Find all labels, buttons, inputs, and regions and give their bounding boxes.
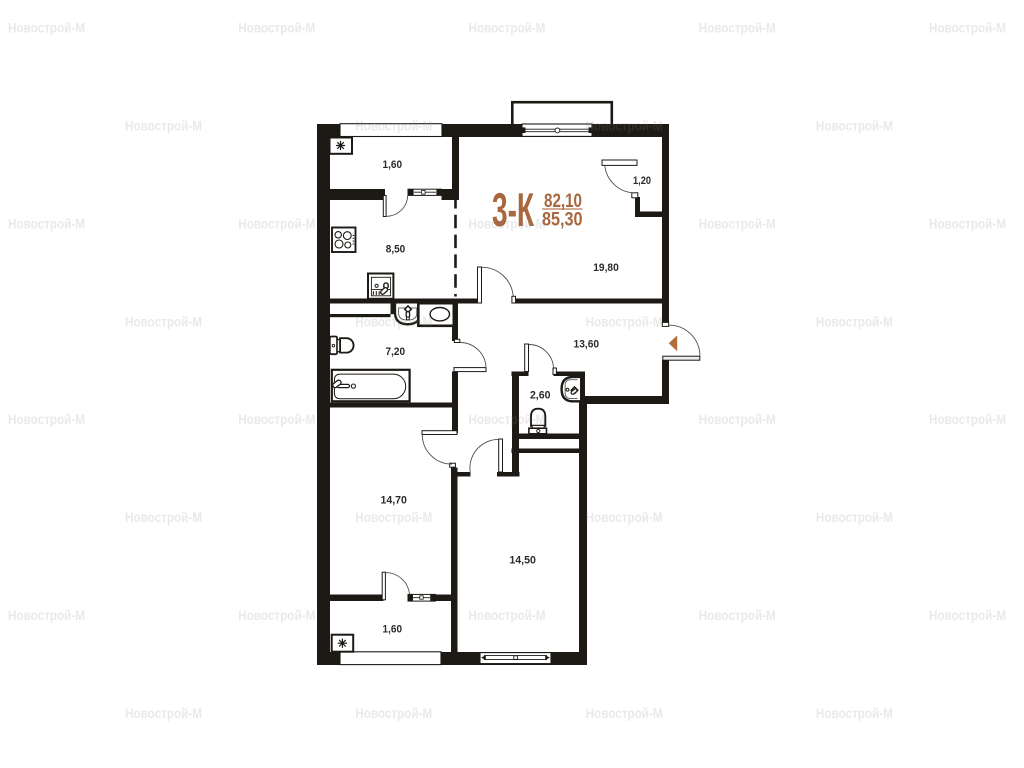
- svg-text:Новострой-М: Новострой-М: [469, 215, 546, 231]
- svg-text:Новострой-М: Новострой-М: [355, 705, 432, 721]
- svg-text:Новострой-М: Новострой-М: [816, 705, 893, 721]
- svg-text:8,50: 8,50: [386, 244, 406, 256]
- svg-text:14,50: 14,50: [509, 555, 536, 567]
- svg-text:Новострой-М: Новострой-М: [238, 607, 315, 623]
- svg-text:Новострой-М: Новострой-М: [586, 313, 663, 329]
- svg-text:Новострой-М: Новострой-М: [238, 215, 315, 231]
- svg-text:Новострой-М: Новострой-М: [125, 509, 202, 525]
- svg-text:Новострой-М: Новострой-М: [355, 509, 432, 525]
- svg-text:Новострой-М: Новострой-М: [699, 411, 776, 427]
- svg-text:Новострой-М: Новострой-М: [8, 411, 85, 427]
- svg-text:Новострой-М: Новострой-М: [8, 20, 85, 36]
- svg-text:1,20: 1,20: [633, 175, 651, 187]
- svg-text:Новострой-М: Новострой-М: [586, 705, 663, 721]
- svg-text:Новострой-М: Новострой-М: [238, 20, 315, 36]
- svg-text:19,80: 19,80: [593, 262, 619, 274]
- svg-text:Новострой-М: Новострой-М: [586, 509, 663, 525]
- svg-text:Новострой-М: Новострой-М: [125, 118, 202, 134]
- svg-text:Новострой-М: Новострой-М: [355, 118, 432, 134]
- svg-text:85,30: 85,30: [542, 210, 583, 231]
- svg-text:Новострой-М: Новострой-М: [699, 215, 776, 231]
- svg-text:7,20: 7,20: [386, 346, 406, 358]
- svg-text:Новострой-М: Новострой-М: [355, 313, 432, 329]
- svg-text:1,60: 1,60: [383, 159, 403, 171]
- svg-text:Новострой-М: Новострой-М: [469, 20, 546, 36]
- svg-text:2,60: 2,60: [530, 389, 551, 401]
- svg-text:Новострой-М: Новострой-М: [8, 215, 85, 231]
- svg-text:13,60: 13,60: [574, 339, 600, 351]
- svg-text:Новострой-М: Новострой-М: [469, 411, 546, 427]
- svg-text:Новострой-М: Новострой-М: [699, 20, 776, 36]
- svg-text:Новострой-М: Новострой-М: [238, 411, 315, 427]
- svg-text:Новострой-М: Новострой-М: [469, 607, 546, 623]
- svg-text:Новострой-М: Новострой-М: [125, 313, 202, 329]
- svg-text:Новострой-М: Новострой-М: [929, 20, 1006, 36]
- svg-text:Новострой-М: Новострой-М: [816, 118, 893, 134]
- svg-text:Новострой-М: Новострой-М: [699, 607, 776, 623]
- svg-text:Новострой-М: Новострой-М: [929, 411, 1006, 427]
- svg-text:Новострой-М: Новострой-М: [929, 607, 1006, 623]
- svg-text:14,70: 14,70: [380, 495, 407, 507]
- svg-text:Новострой-М: Новострой-М: [125, 705, 202, 721]
- svg-text:Новострой-М: Новострой-М: [816, 509, 893, 525]
- svg-text:Новострой-М: Новострой-М: [586, 118, 663, 134]
- svg-text:Новострой-М: Новострой-М: [8, 607, 85, 623]
- svg-text:Новострой-М: Новострой-М: [816, 313, 893, 329]
- svg-text:Новострой-М: Новострой-М: [929, 215, 1006, 231]
- svg-text:1,60: 1,60: [383, 623, 403, 635]
